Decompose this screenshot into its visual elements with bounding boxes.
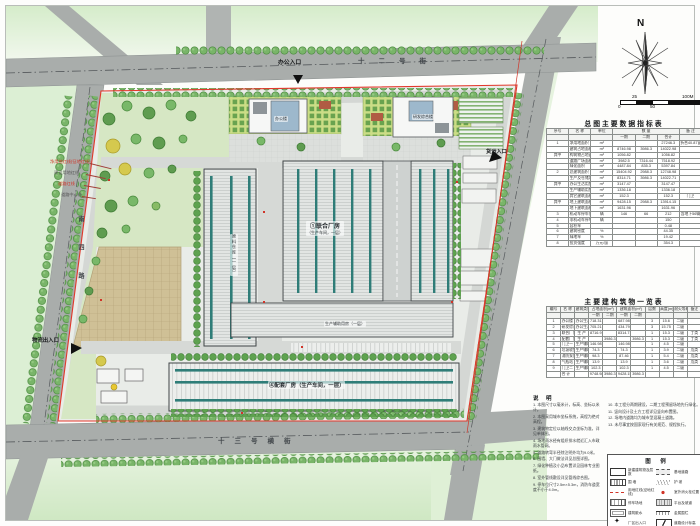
union-plant-title: ①联合厂房 bbox=[307, 221, 343, 230]
boundary-label-road-redline: 道路红线 bbox=[58, 181, 75, 186]
aux-building-label: 生产辅助用房（一层） bbox=[324, 321, 366, 327]
office2-label: 研发综合楼 bbox=[412, 114, 434, 120]
drawing-page: 办公入口 十二号街 十三号横街 南四路 货运入口 物流出入口 净用地红线(征地红… bbox=[0, 0, 700, 526]
boundary-label-road-centerline: 道路中心线 bbox=[61, 192, 82, 197]
legend-item-label: 厂区出入口 bbox=[627, 521, 656, 525]
freight-entrance-label: 货运入口 bbox=[486, 148, 507, 155]
elev-symbol-icon bbox=[656, 519, 672, 526]
street-name-left: 南四路 bbox=[76, 216, 85, 301]
site-plan-canvas bbox=[6, 6, 694, 520]
union-plant-subtitle: （生产车间，一层） bbox=[307, 230, 343, 236]
warehouse-label: 原料仓库（一层） bbox=[230, 234, 238, 276]
gate-symbol-icon bbox=[610, 520, 624, 526]
boundary-label-net-redline: 净用地红线(征地红线) bbox=[50, 159, 90, 164]
legend-item-label: 道路设计标高 bbox=[673, 521, 700, 525]
boundary-label-build-redline: 建设用地红线 bbox=[54, 170, 79, 175]
street-name-bottom: 十三号横街 bbox=[218, 435, 301, 445]
logistics-entrance-label: 物流出入口 bbox=[32, 336, 59, 344]
office1-label: 办公楼 bbox=[274, 116, 288, 122]
drawing-sheet: 办公入口 十二号街 十三号横街 南四路 货运入口 物流出入口 净用地红线(征地红… bbox=[5, 5, 695, 521]
office-entrance-label: 办公入口 bbox=[278, 57, 301, 66]
street-name-top: 十二号街 bbox=[358, 55, 440, 65]
support-plant-label: ④配套厂房（生产车间，一层） bbox=[268, 381, 345, 389]
union-plant-label: ①联合厂房 （生产车间，一层） bbox=[306, 221, 344, 236]
